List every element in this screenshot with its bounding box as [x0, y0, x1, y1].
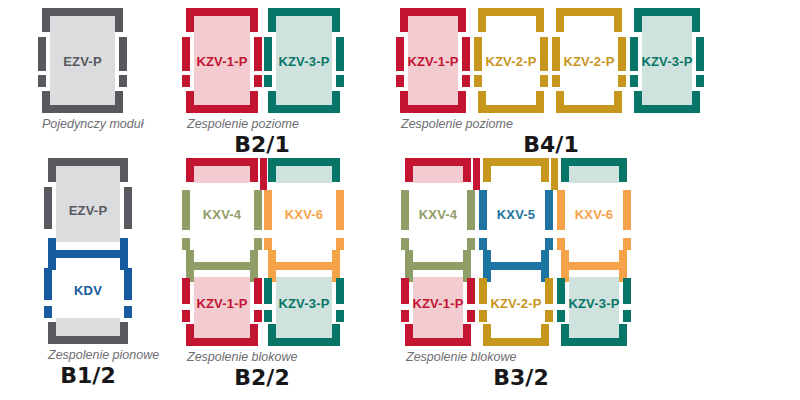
cap-corner-left [186, 166, 194, 182]
tray-corner-right [332, 324, 340, 338]
connector-cross-bar [483, 262, 549, 270]
module-label: KXV-4 [395, 207, 481, 222]
module-column: KZV-1-P [400, 8, 466, 113]
module-label: KZV-1-P [395, 296, 481, 311]
cap-corner-left [268, 16, 276, 32]
cap-corner-left [483, 166, 491, 182]
cap-top-bar [48, 158, 128, 166]
flashing-tray [400, 89, 466, 113]
tray-bottom-bar [483, 338, 549, 346]
tray-fill [56, 318, 120, 336]
cap-corner-left [400, 16, 408, 32]
cap-top-bar [634, 8, 700, 16]
side-stub [38, 75, 46, 87]
tray-bottom-bar [186, 338, 258, 346]
side-stub [182, 310, 190, 322]
tray-corner-right [536, 91, 544, 105]
flashing-body-full: EZV-P [42, 34, 123, 89]
module-column: KXV-6KZV-3-P [268, 158, 340, 346]
module-label: KZV-1-P [176, 296, 268, 311]
module-label: KZV-3-P [258, 296, 350, 311]
flashing-body-kxv: KXV-6 [561, 184, 627, 254]
flashing-cap [42, 8, 123, 34]
side-stub [618, 75, 626, 87]
flashing-tray [268, 89, 340, 113]
tray-bottom-bar [405, 338, 471, 346]
flashing-cap [48, 158, 128, 184]
flashing-tray [268, 322, 340, 346]
flashing-body-full: KZV-2-P [556, 34, 622, 89]
tray-corner-left [405, 324, 413, 338]
module-column: EZV-PKDV [48, 158, 128, 344]
flashing-body-full: KZV-3-P [634, 34, 700, 89]
tray-corner-left [561, 324, 569, 338]
side-stub [696, 75, 704, 87]
tray-bottom-bar [400, 105, 466, 113]
tray-corner-left [400, 91, 408, 105]
tray-corner-right [332, 91, 340, 105]
group-caption: Zespolenie pionowe [48, 348, 128, 362]
tray-bottom-bar [42, 105, 123, 113]
tray-bottom-bar [186, 105, 258, 113]
tray-corner-left [186, 324, 194, 338]
cap-corner-right [250, 166, 258, 182]
module-label: KXV-4 [176, 207, 268, 222]
module-label: KZV-3-P [624, 54, 710, 69]
connector-cross-bar [48, 250, 128, 258]
group-caption: Zespolenie poziome [401, 117, 513, 131]
connector-cross-bar [405, 262, 471, 270]
flashing-conn [483, 254, 549, 278]
cap-corner-right [458, 16, 466, 32]
module-column: KXV-4KZV-1-P [405, 158, 471, 346]
group-caption: Zespolenie blokowe [406, 350, 517, 364]
flashing-tray [561, 322, 627, 346]
flashing-body-base: KZV-3-P [268, 278, 340, 322]
module-label: KDV [38, 283, 138, 298]
side-stub [557, 238, 565, 250]
side-stub [182, 75, 190, 87]
tray-corner-left [483, 324, 491, 338]
side-stub [264, 75, 272, 87]
flashing-conn [186, 254, 258, 278]
flashing-body-kxv: KXV-6 [268, 184, 340, 254]
group-title: B2/1 [234, 132, 289, 157]
side-stub [254, 238, 262, 250]
tray-bottom-bar [556, 105, 622, 113]
module-column: KXV-6KZV-3-P [561, 158, 627, 346]
cap-corner-left [556, 16, 564, 32]
tray-fill [50, 87, 115, 105]
flashing-body-base: KZV-1-P [405, 278, 471, 322]
cap-top-bar [400, 8, 466, 16]
module-label: EZV-P [32, 54, 133, 69]
side-stub [44, 306, 52, 318]
flashing-cap [268, 158, 340, 184]
cap-corner-left [405, 166, 413, 182]
flashing-tray [405, 322, 471, 346]
flashing-tray [186, 322, 258, 346]
cap-corner-right [115, 16, 123, 32]
flashing-cap [405, 158, 471, 184]
module-label: EZV-P [38, 203, 138, 218]
side-stub [336, 310, 344, 322]
cap-corner-left [634, 16, 642, 32]
flashing-tray [556, 89, 622, 113]
side-stub [254, 75, 262, 87]
cap-corner-left [42, 16, 50, 32]
tray-corner-right [463, 324, 471, 338]
side-stub [462, 75, 470, 87]
cap-top-bar [483, 158, 549, 166]
cap-top-bar [186, 158, 258, 166]
tray-bottom-bar [634, 105, 700, 113]
module-column: KZV-2-P [556, 8, 622, 113]
group-caption: Zespolenie blokowe [187, 350, 298, 364]
cap-corner-right [120, 166, 128, 182]
module-column: KZV-1-P [186, 8, 258, 113]
side-stub [479, 310, 487, 322]
cap-top-bar [556, 8, 622, 16]
flashing-tray [186, 89, 258, 113]
cap-corner-left [186, 16, 194, 32]
tray-bottom-bar [478, 105, 544, 113]
flashing-combinations-diagram: EZV-PPojedynczy modułKZV-1-PKZV-3-PZespo… [0, 0, 800, 400]
tray-corner-left [634, 91, 642, 105]
tray-corner-left [478, 91, 486, 105]
module-column: KXV-5KZV-2-P [483, 158, 549, 346]
cap-corner-right [250, 16, 258, 32]
group-title: B4/1 [523, 132, 578, 157]
group-title: B2/2 [234, 365, 289, 390]
cap-divider-bar [473, 158, 480, 190]
tray-corner-left [556, 91, 564, 105]
side-stub [552, 75, 560, 87]
tray-corner-left [268, 91, 276, 105]
side-stub [545, 310, 553, 322]
cap-corner-right [614, 16, 622, 32]
flashing-tray [483, 322, 549, 346]
module-label: KZV-3-P [551, 296, 637, 311]
cap-corner-right [541, 166, 549, 182]
cap-top-bar [186, 8, 258, 16]
side-stub [401, 310, 409, 322]
flashing-body-base: KZV-2-P [483, 278, 549, 322]
cap-corner-left [561, 166, 569, 182]
group-title: B1/2 [60, 363, 115, 388]
tray-fill [276, 320, 332, 338]
tray-fill [276, 87, 332, 105]
side-stub [336, 75, 344, 87]
side-stub [254, 310, 262, 322]
flashing-cap [400, 8, 466, 34]
tray-corner-right [115, 91, 123, 105]
flashing-conn [48, 242, 128, 266]
side-stub [630, 75, 638, 87]
side-stub [467, 310, 475, 322]
flashing-tray [634, 89, 700, 113]
flashing-body-mid: KDV [48, 266, 128, 320]
cap-corner-right [332, 166, 340, 182]
cap-divider-bar [551, 158, 558, 190]
cap-divider-bar [260, 158, 267, 190]
module-label: KZV-2-P [473, 296, 559, 311]
connector-cross-bar [268, 262, 340, 270]
tray-corner-left [48, 322, 56, 336]
side-stub [182, 238, 190, 250]
connector-cross-bar [561, 262, 627, 270]
flashing-body-top: EZV-P [48, 184, 128, 242]
module-column: EZV-P [42, 8, 123, 113]
tray-corner-right [541, 324, 549, 338]
cap-corner-left [478, 16, 486, 32]
flashing-body-full: KZV-1-P [400, 34, 466, 89]
tray-fill [413, 320, 463, 338]
module-column: KZV-3-P [634, 8, 700, 113]
flashing-cap [268, 8, 340, 34]
tray-corner-left [268, 324, 276, 338]
flashing-conn [561, 254, 627, 278]
tray-fill [194, 87, 250, 105]
tray-bottom-bar [561, 338, 627, 346]
tray-corner-right [250, 91, 258, 105]
tray-fill [194, 320, 250, 338]
cap-top-bar [268, 158, 340, 166]
flashing-body-base: KZV-3-P [561, 278, 627, 322]
side-stub [119, 75, 127, 87]
flashing-cap [478, 8, 544, 34]
tray-corner-right [458, 91, 466, 105]
tray-corner-right [614, 91, 622, 105]
tray-corner-right [619, 324, 627, 338]
module-label: KZV-2-P [546, 54, 632, 69]
side-stub [474, 75, 482, 87]
side-stub [264, 310, 272, 322]
tray-corner-right [120, 322, 128, 336]
cap-corner-right [536, 16, 544, 32]
module-column: KZV-2-P [478, 8, 544, 113]
flashing-body-full: KZV-1-P [186, 34, 258, 89]
module-label: KXV-5 [473, 207, 559, 222]
flashing-body-kxv: KXV-5 [483, 184, 549, 254]
side-stub [336, 238, 344, 250]
flashing-cap [556, 8, 622, 34]
module-label: KZV-3-P [258, 54, 350, 69]
group-caption: Pojedynczy moduł [42, 117, 123, 131]
flashing-cap [561, 158, 627, 184]
flashing-cap [186, 158, 258, 184]
side-stub [479, 238, 487, 250]
cap-top-bar [561, 158, 627, 166]
flashing-tray [48, 320, 128, 344]
side-stub [545, 238, 553, 250]
cap-corner-left [48, 166, 56, 182]
flashing-cap [186, 8, 258, 34]
module-label: KZV-2-P [468, 54, 554, 69]
flashing-body-base: KZV-1-P [186, 278, 258, 322]
tray-fill [486, 87, 536, 105]
tray-fill [642, 87, 692, 105]
tray-corner-right [250, 324, 258, 338]
tray-corner-right [692, 91, 700, 105]
tray-corner-left [186, 91, 194, 105]
side-stub [401, 238, 409, 250]
side-stub [557, 310, 565, 322]
group-caption: Zespolenie poziome [187, 117, 299, 131]
flashing-body-kxv: KXV-4 [405, 184, 471, 254]
side-stub [623, 238, 631, 250]
flashing-body-full: KZV-3-P [268, 34, 340, 89]
module-label: KXV-6 [551, 207, 637, 222]
cap-top-bar [478, 8, 544, 16]
module-column: KXV-4KZV-1-P [186, 158, 258, 346]
flashing-cap [634, 8, 700, 34]
module-column: KZV-3-P [268, 8, 340, 113]
tray-corner-left [42, 91, 50, 105]
flashing-body-kxv: KXV-4 [186, 184, 258, 254]
module-label: KZV-1-P [176, 54, 268, 69]
side-stub [396, 75, 404, 87]
flashing-tray [478, 89, 544, 113]
cap-top-bar [268, 8, 340, 16]
flashing-conn [405, 254, 471, 278]
flashing-conn [268, 254, 340, 278]
cap-corner-right [332, 16, 340, 32]
tray-fill [491, 320, 541, 338]
cap-top-bar [405, 158, 471, 166]
tray-bottom-bar [48, 336, 128, 344]
tray-fill [408, 87, 458, 105]
tray-fill [569, 320, 619, 338]
group-title: B3/2 [493, 365, 548, 390]
flashing-body-full: KZV-2-P [478, 34, 544, 89]
tray-bottom-bar [268, 338, 340, 346]
cap-corner-right [463, 166, 471, 182]
side-stub [467, 238, 475, 250]
connector-cross-bar [186, 262, 258, 270]
side-stub [124, 306, 132, 318]
tray-fill [564, 87, 614, 105]
module-label: KXV-6 [258, 207, 350, 222]
cap-corner-right [619, 166, 627, 182]
flashing-cap [483, 158, 549, 184]
side-stub [540, 75, 548, 87]
cap-corner-right [692, 16, 700, 32]
cap-corner-left [268, 166, 276, 182]
side-stub [623, 310, 631, 322]
module-label: KZV-1-P [390, 54, 476, 69]
side-stub [264, 238, 272, 250]
cap-top-bar [42, 8, 123, 16]
flashing-tray [42, 89, 123, 113]
tray-bottom-bar [268, 105, 340, 113]
